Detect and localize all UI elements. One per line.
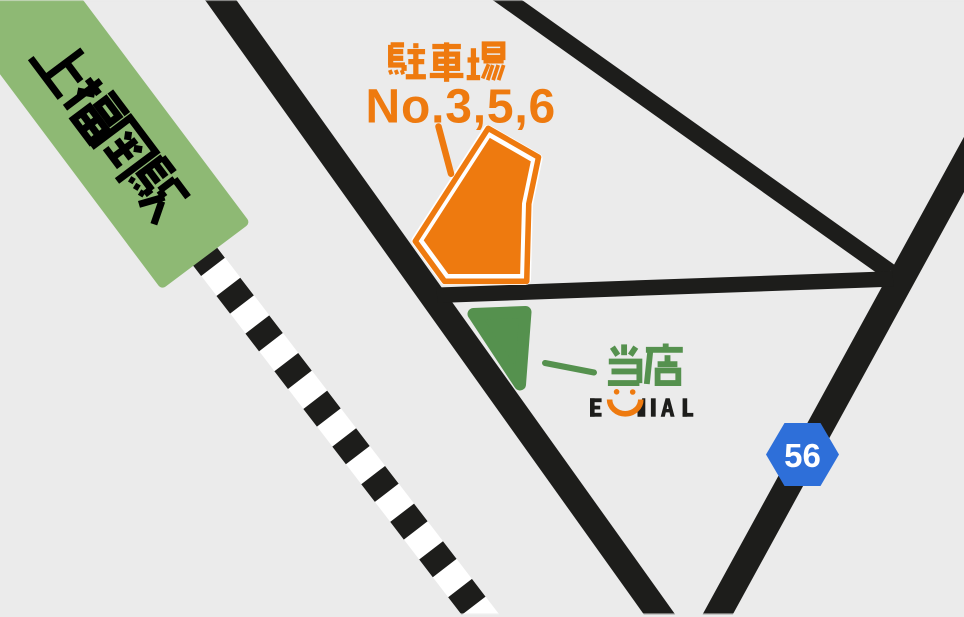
svg-text:No.3,5,6: No.3,5,6 xyxy=(366,81,556,134)
svg-text:56: 56 xyxy=(784,437,821,474)
